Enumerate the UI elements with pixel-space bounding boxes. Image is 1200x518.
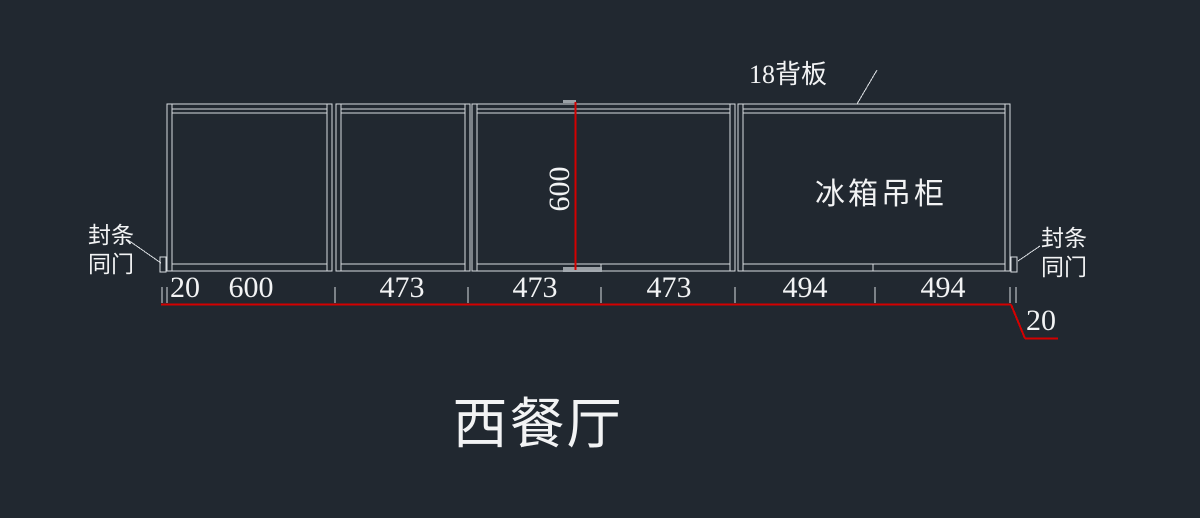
dimension-text: 600 xyxy=(229,271,274,305)
seal-label-right-line1: 封条 xyxy=(1041,224,1087,253)
dimension-text: 473 xyxy=(513,271,558,305)
back-panel-leader-line xyxy=(857,70,877,104)
dimension-text: 473 xyxy=(647,271,692,305)
grip-mark xyxy=(563,267,602,272)
seal-label-right: 封条 同门 xyxy=(1041,224,1087,282)
offset-leader-line xyxy=(1011,305,1025,339)
dimension-text: 494 xyxy=(921,271,966,305)
seal-label-left-line1: 封条 xyxy=(88,221,134,250)
fridge-cabinet-label: 冰箱吊柜 xyxy=(815,169,947,213)
seal-label-left: 封条 同门 xyxy=(88,221,134,279)
right-offset-dimension-text: 20 xyxy=(1026,304,1056,338)
seal-right-leader-line xyxy=(1018,246,1040,261)
dimension-text: 473 xyxy=(380,271,425,305)
seal-label-left-line2: 同门 xyxy=(88,250,134,279)
dimension-text: 20 xyxy=(170,271,200,305)
cabinet-box-2 xyxy=(336,104,470,271)
seal-label-right-line2: 同门 xyxy=(1041,253,1087,282)
drawing-title: 西餐厅 xyxy=(452,379,623,459)
height-dimension-text: 600 xyxy=(543,167,577,212)
cabinet-box-3 xyxy=(472,104,735,271)
dimension-text: 494 xyxy=(783,271,828,305)
back-panel-label: 18背板 xyxy=(749,54,827,91)
seal-strip-right xyxy=(1011,257,1017,272)
seal-strip-left xyxy=(160,257,166,272)
grip-mark xyxy=(563,100,576,103)
cad-drawing: 18背板 冰箱吊柜 封条 同门 封条 同门 600 20 600 473 473… xyxy=(0,0,1200,518)
cabinet-box-1 xyxy=(167,104,332,271)
dimension-ticks xyxy=(162,287,1016,303)
